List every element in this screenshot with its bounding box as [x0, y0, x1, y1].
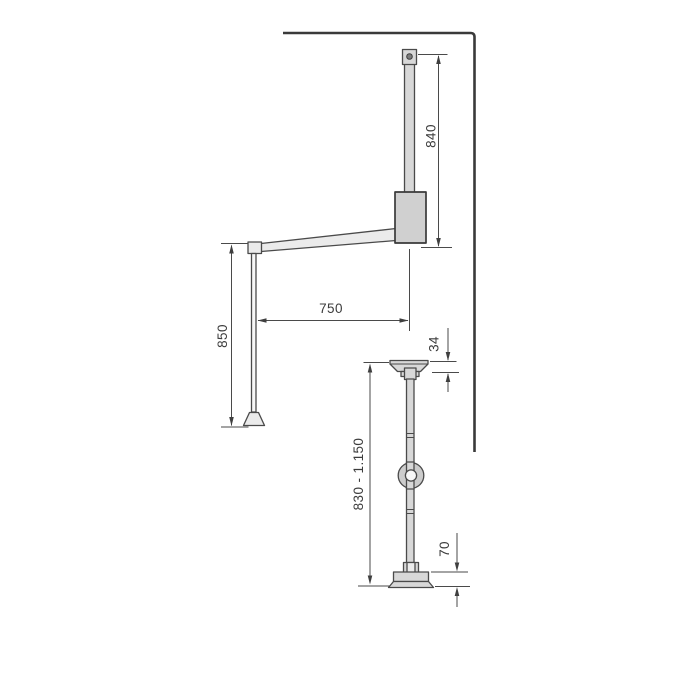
arrow-left-icon	[258, 318, 267, 323]
arrow-right-icon	[400, 318, 409, 323]
dim-label-base-height: 70	[437, 541, 452, 557]
rod-foot	[244, 413, 265, 426]
hanging-rod	[252, 254, 257, 413]
arrow-up-icon	[446, 373, 451, 382]
arrow-up-icon	[436, 55, 441, 64]
swing-arm	[261, 229, 396, 252]
dim-label-cap-depth: 34	[427, 336, 442, 352]
arrow-down-icon	[368, 576, 373, 585]
arrow-down-icon	[229, 417, 234, 426]
technical-drawing-canvas: 840 750 850	[0, 0, 700, 700]
dim-label-pole-range: 830 - 1.150	[351, 438, 366, 511]
base-skirt	[389, 582, 434, 588]
arrow-up-icon	[229, 245, 234, 254]
dimension-750: 750	[258, 249, 410, 331]
arrow-down-icon	[455, 563, 460, 572]
dim-label-rod-drop: 850	[215, 324, 230, 348]
mechanism-block	[395, 192, 426, 243]
arrow-up-icon	[368, 364, 373, 373]
mounting-bar	[405, 62, 415, 193]
arrow-up-icon	[455, 587, 460, 596]
screw-icon	[407, 54, 413, 60]
dimension-34: 34	[427, 328, 459, 392]
dimension-830-1150: 830 - 1.150	[351, 363, 390, 587]
arm-end-cap	[248, 242, 262, 254]
arrow-down-icon	[446, 352, 451, 361]
cap-hub	[405, 368, 417, 380]
base-block	[394, 572, 429, 582]
knob-center	[405, 470, 416, 481]
dim-label-bar-height: 840	[424, 124, 439, 148]
dimension-70: 70	[431, 533, 470, 607]
dim-label-arm-length: 750	[319, 301, 343, 316]
dimension-850: 850	[215, 244, 248, 428]
support-pole-front-view	[389, 361, 434, 588]
arrow-down-icon	[436, 238, 441, 247]
